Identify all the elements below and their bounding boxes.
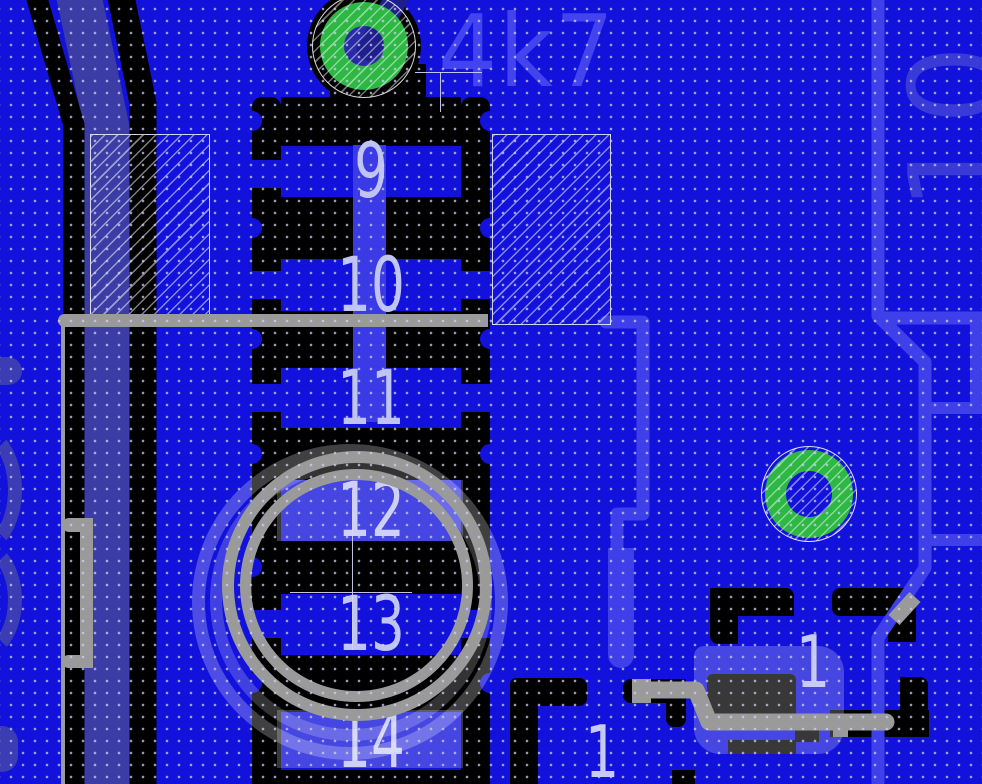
silkscreen-trace-bottom[interactable] — [0, 0, 982, 784]
silkscreen-patch — [833, 714, 848, 737]
crosshair-center-v — [352, 490, 353, 650]
pcb-canvas: 4k7 10 9 10 11 12 13 14 1 1 — [0, 0, 982, 784]
crosshair-top-h — [415, 72, 482, 73]
crosshair-top-v — [440, 72, 441, 112]
crosshair-center-h — [290, 592, 412, 593]
silkscreen-patch — [632, 679, 651, 703]
